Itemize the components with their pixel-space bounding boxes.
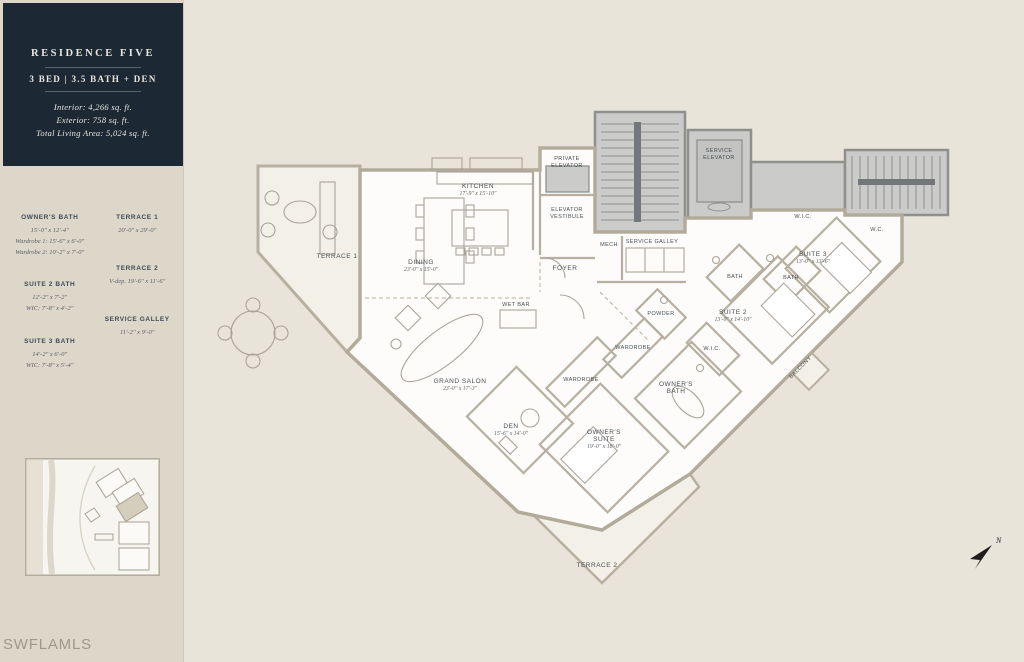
dim-terrace1: TERRACE 1 20'-0" x 29'-0" (94, 213, 182, 237)
dim-header: SUITE 3 BATH (6, 337, 94, 346)
floorplan-page: RESIDENCE FIVE 3 BED | 3.5 BATH + DEN In… (0, 0, 1024, 662)
room-label-mech: MECH (600, 242, 618, 248)
divider (45, 67, 141, 68)
room-label-foyer: FOYER (553, 265, 578, 272)
room-label-bath-suite2: BATH (727, 274, 743, 280)
room-label-dining: DINING (408, 259, 434, 266)
room-label-private-elevator: ELEVATOR (551, 163, 583, 169)
dim-value: 11'-2" x 9'-0" (94, 328, 182, 339)
room-dim-suite2: 13'-0" x 14'-10" (715, 316, 753, 323)
room-dim-kitchen: 17'-9" x 15'-10" (460, 191, 498, 197)
room-label-wardrobe-den: WARDROBE (563, 377, 598, 383)
room-label-private-elevator: PRIVATE (554, 156, 580, 162)
room-dim-dining: 23'-0" x 15'-0" (404, 267, 439, 273)
interior-area: Interior: 4,266 sq. ft. (3, 101, 183, 114)
room-dim-grand-salon: 23'-0" x 17'-3" (443, 386, 478, 392)
private-elevator-cab (546, 166, 589, 192)
room-dim-suite3: 13'-0" x 13'-6" (796, 259, 831, 265)
residence-title: RESIDENCE FIVE (3, 49, 183, 60)
dim-value: Wardrobe 1: 15'-6" x 6'-0" (6, 237, 94, 248)
room-label-wic-owner: W.I.C. (703, 346, 720, 352)
divider (45, 91, 141, 92)
north-arrow-icon: N (970, 536, 1002, 569)
room-label-kitchen: KITCHEN (462, 183, 494, 190)
room-label-owners-bath: OWNER'S (659, 381, 693, 388)
area-summary: Interior: 4,266 sq. ft. Exterior: 758 sq… (3, 101, 183, 141)
north-label: N (995, 536, 1002, 545)
room-dim-den: 15'-6" x 14'-0" (494, 430, 529, 437)
room-label-suite2: SUITE 2 (719, 309, 747, 316)
dim-suite3-bath: SUITE 3 BATH 14'-2" x 6'-0" WIC: 7'-8" x… (6, 337, 94, 372)
dim-value: 20'-0" x 29'-0" (94, 226, 182, 237)
room-label-bath-suite3: BATH (783, 275, 799, 281)
dim-header: OWNER'S BATH (6, 213, 94, 222)
dim-header: TERRACE 2 (94, 264, 182, 273)
room-label-owners-suite: OWNER'S (587, 429, 621, 436)
room-label-grand-salon: GRAND SALON (434, 378, 487, 385)
site-map-drawing (25, 458, 160, 576)
dim-value: WIC: 7'-8" x 5'-4" (6, 361, 94, 372)
beach-band (27, 460, 43, 574)
residence-summary-card: RESIDENCE FIVE 3 BED | 3.5 BATH + DEN In… (3, 3, 183, 166)
room-label-suite3: SUITE 3 (799, 251, 827, 258)
info-sidebar: RESIDENCE FIVE 3 BED | 3.5 BATH + DEN In… (0, 0, 184, 662)
room-label-service-elevator: ELEVATOR (703, 155, 735, 161)
dim-value: 12'-2" x 7'-2" (6, 293, 94, 304)
room-label-wet-bar: WET BAR (502, 302, 530, 308)
room-label-powder: POWDER (647, 311, 674, 317)
room-dim-owners-suite: 19'-0" x 18'-0" (587, 444, 622, 450)
dim-value: Wardrobe 2: 10'-2" x 7'-0" (6, 248, 94, 259)
stair-rail (858, 179, 935, 185)
dim-value: 15'-0" x 12'-4" (6, 226, 94, 237)
room-label-terrace-2: TERRACE 2 (577, 562, 618, 569)
room-label-elevator-vestibule: VESTIBULE (550, 214, 584, 220)
room-dimension-list: OWNER'S BATH 15'-0" x 12'-4" Wardrobe 1:… (6, 213, 181, 393)
mls-watermark: SWFLAMLS (3, 636, 92, 653)
dim-value: V-dep. 19'-6" x 11'-6" (94, 277, 182, 288)
dim-terrace2: TERRACE 2 V-dep. 19'-6" x 11'-6" (94, 264, 182, 288)
exterior-area: Exterior: 758 sq. ft. (3, 114, 183, 127)
room-label-elevator-vestibule: ELEVATOR (551, 207, 583, 213)
dim-owners-bath: OWNER'S BATH 15'-0" x 12'-4" Wardrobe 1:… (6, 213, 94, 258)
room-label-owners-suite: SUITE (593, 436, 615, 443)
dim-header: TERRACE 1 (94, 213, 182, 222)
room-label-den: DEN (503, 423, 518, 430)
dim-header: SERVICE GALLEY (94, 315, 182, 324)
dim-value: 14'-2" x 6'-0" (6, 350, 94, 361)
service-corridor (751, 162, 845, 210)
residence-subtitle: 3 BED | 3.5 BATH + DEN (3, 75, 183, 84)
dimension-column-right: TERRACE 1 20'-0" x 29'-0" TERRACE 2 V-de… (94, 213, 182, 393)
room-label-service-elevator: SERVICE (706, 148, 733, 154)
dimension-column-left: OWNER'S BATH 15'-0" x 12'-4" Wardrobe 1:… (6, 213, 94, 393)
room-label-wardrobe-owner: WARDROBE (615, 345, 650, 351)
shoreline (50, 460, 52, 574)
stair-rail (634, 122, 641, 222)
room-label-owners-bath: BATH (667, 388, 686, 395)
room-label-wic-suite3: W.I.C. (794, 214, 811, 220)
total-area: Total Living Area: 5,024 sq. ft. (3, 127, 183, 140)
room-label-service-galley: SERVICE GALLEY (626, 239, 679, 245)
room-label-terrace-1: TERRACE 1 (317, 253, 358, 260)
room-label-wc: W.C. (870, 227, 884, 233)
dim-header: SUITE 2 BATH (6, 280, 94, 289)
site-key-map (25, 458, 160, 576)
dim-suite2-bath: SUITE 2 BATH 12'-2" x 7'-2" WIC: 7'-8" x… (6, 280, 94, 315)
dim-value: WIC: 7'-8" x 4'-2" (6, 304, 94, 315)
dim-service-galley: SERVICE GALLEY 11'-2" x 9'-0" (94, 315, 182, 339)
